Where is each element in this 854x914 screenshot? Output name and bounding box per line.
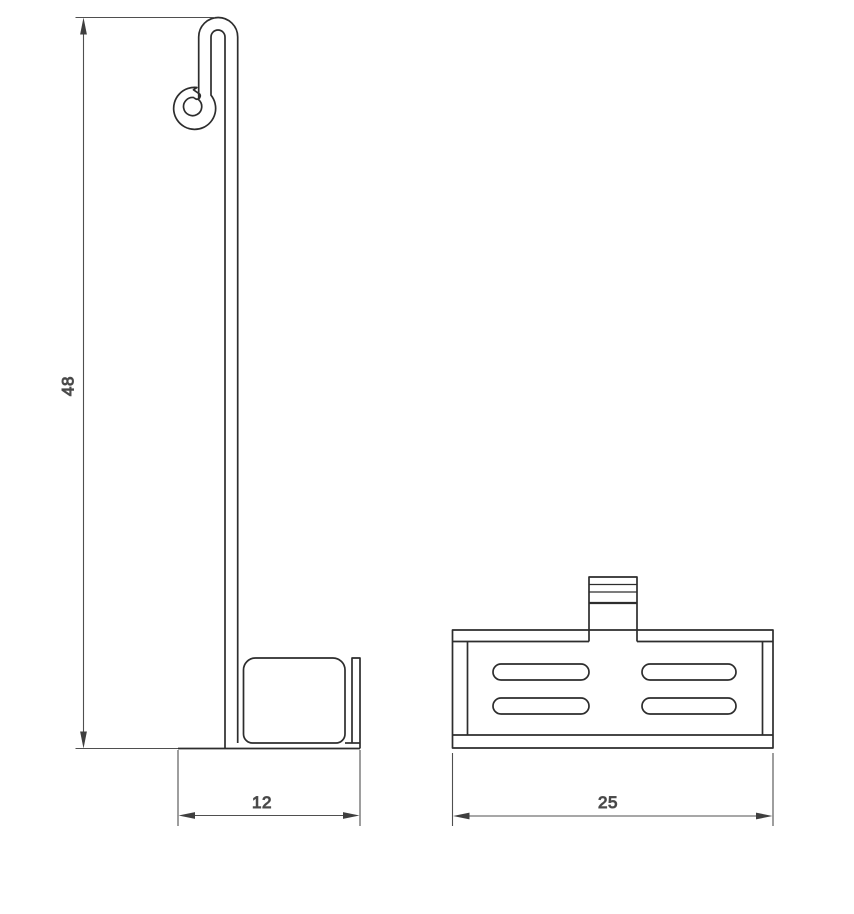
dimension-height: 48 (58, 18, 215, 749)
slot (493, 698, 589, 714)
dimension-depth: 12 (178, 750, 360, 826)
slot (642, 664, 736, 680)
dimension-width: 25 (453, 753, 774, 826)
arrow-right-icon (756, 813, 773, 820)
base-pad-left-fillet (244, 734, 253, 743)
base-pad-right-fillet (336, 734, 345, 743)
arrow-down-icon (80, 732, 87, 749)
technical-drawing: 48 12 25 (0, 0, 854, 914)
side-view (174, 18, 360, 749)
hook-inner-contour (174, 30, 225, 749)
slot (642, 698, 736, 714)
body-outline (453, 630, 774, 748)
drawing-canvas: 48 12 25 (0, 0, 854, 914)
arrow-right-icon (343, 812, 360, 819)
arrow-up-icon (80, 18, 87, 35)
slot (493, 664, 589, 680)
arrow-left-icon (179, 812, 196, 819)
front-view (453, 577, 774, 748)
hook-tab-outline (589, 577, 637, 642)
return-flange (352, 658, 360, 749)
arrow-left-icon (453, 813, 470, 820)
dim-depth-label: 12 (252, 793, 272, 812)
base-pad-outline (244, 658, 346, 734)
hook-outer-contour (184, 18, 238, 744)
dim-width-label: 25 (598, 793, 618, 812)
dim-height-label: 48 (58, 376, 77, 396)
